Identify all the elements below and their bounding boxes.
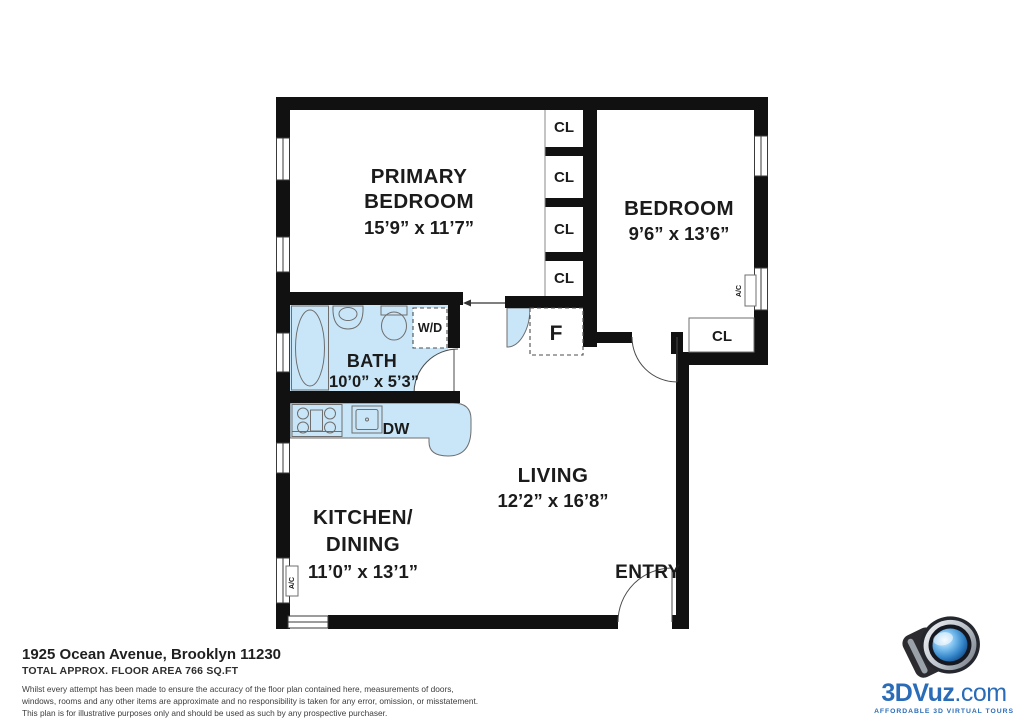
address-line: 1925 Ocean Avenue, Brooklyn 11230 — [22, 646, 622, 663]
kitchen-dining-label-2: DINING — [326, 533, 400, 556]
bedroom-closet-label: CL — [712, 328, 732, 345]
vendor-logo: 3DVuz.com AFFORDABLE 3D VIRTUAL TOURS — [868, 612, 1020, 715]
kitchen-dining-dims: 11’0” x 13’1” — [308, 561, 418, 582]
kitchen-counter — [290, 403, 471, 456]
ac-label-left: A/C — [289, 577, 296, 589]
bedroom-dims: 9’6” x 13’6” — [629, 223, 730, 244]
camera-lens-icon — [884, 612, 1004, 678]
closet-label-1: CL — [554, 119, 574, 136]
primary-bedroom-label-2: BEDROOM — [364, 190, 474, 213]
closet-label-2: CL — [554, 169, 574, 186]
brand-tagline: AFFORDABLE 3D VIRTUAL TOURS — [868, 708, 1020, 715]
living-dims: 12’2” x 16’8” — [497, 490, 608, 511]
brand-name: 3DVuz.com — [868, 681, 1020, 706]
primary-bedroom-label-1: PRIMARY — [371, 165, 468, 188]
bath-dims: 10’0” x 5’3” — [329, 373, 419, 391]
brand-name-bold: 3DVuz — [881, 679, 954, 707]
washer-dryer-label: W/D — [418, 321, 442, 335]
bedroom-door — [632, 337, 677, 382]
hallway-arrow-icon — [463, 300, 505, 307]
ac-label-right: A/C — [736, 285, 743, 297]
floor-plan-page: PRIMARY BEDROOM 15’9” x 11’7” BEDROOM 9’… — [0, 0, 1024, 724]
primary-bedroom-dims: 15’9” x 11’7” — [364, 217, 474, 238]
disclaimer-line-2: windows, rooms and any other items are a… — [22, 695, 622, 707]
footer: 1925 Ocean Avenue, Brooklyn 11230 TOTAL … — [22, 646, 622, 719]
brand-name-suffix: .com — [954, 679, 1006, 707]
disclaimer: Whilst every attempt has been made to en… — [22, 683, 622, 719]
bedroom-label: BEDROOM — [624, 197, 734, 220]
ac-unit-right — [745, 275, 756, 306]
entry-label: ENTRY — [615, 562, 681, 583]
bath-label: BATH — [347, 351, 397, 371]
disclaimer-line-1: Whilst every attempt has been made to en… — [22, 683, 622, 695]
closet-label-4: CL — [554, 270, 574, 287]
kitchen-dining-label-1: KITCHEN/ — [313, 506, 413, 529]
dishwasher-label: DW — [383, 421, 411, 438]
closet-label-3: CL — [554, 221, 574, 238]
disclaimer-line-3: This plan is for illustrative purposes o… — [22, 707, 622, 719]
living-label: LIVING — [518, 464, 589, 487]
foyer-door-swing — [507, 308, 530, 347]
foyer-label: F — [550, 322, 563, 345]
floor-area-line: TOTAL APPROX. FLOOR AREA 766 SQ.FT — [22, 665, 622, 677]
